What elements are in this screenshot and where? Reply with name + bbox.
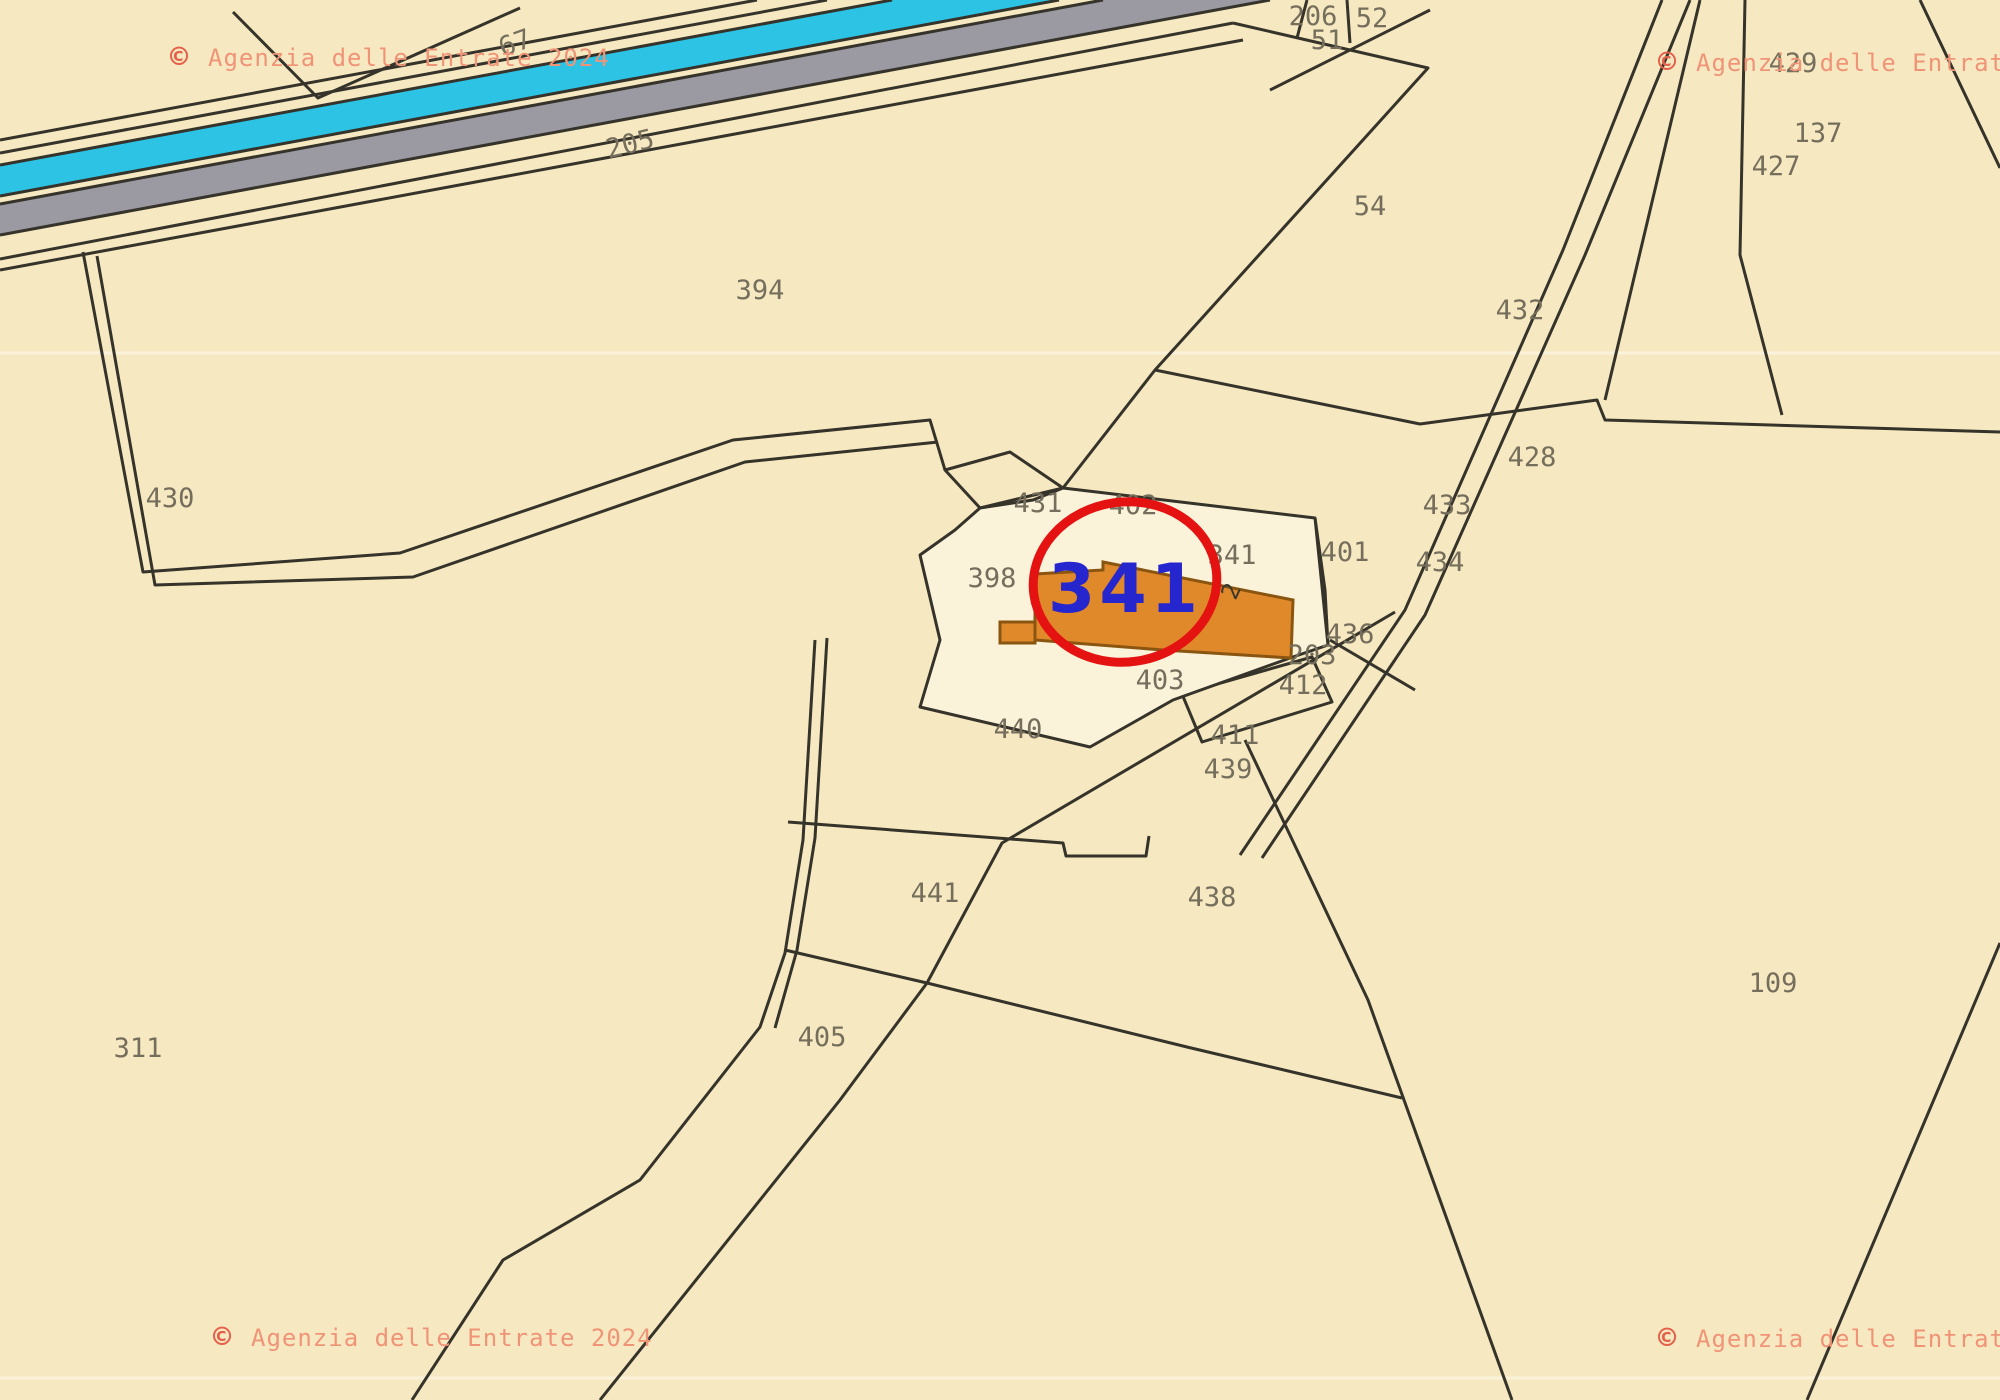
parcel-label-403: 403 — [1136, 665, 1185, 696]
parcel-label-441: 441 — [911, 878, 960, 909]
parcel-label-203: 203 — [1288, 640, 1337, 671]
parcel-label-205: 205 — [603, 124, 658, 166]
parcel-label-137: 137 — [1794, 118, 1843, 149]
cadastral-map-viewport[interactable]: 2 67205206525154394429137427432428433434… — [0, 0, 2000, 1400]
parcel-label-394: 394 — [736, 275, 785, 306]
parcel-label-412: 412 — [1279, 670, 1328, 701]
parcel-label-433: 433 — [1423, 490, 1472, 521]
parcel-label-54: 54 — [1354, 191, 1387, 222]
copyright-symbol-icon: © — [170, 40, 189, 75]
parcel-label-428: 428 — [1508, 442, 1557, 473]
parcel-label-51: 51 — [1311, 25, 1344, 56]
copyright-watermark-text: Agenzia delle Entrate 2024 — [1696, 49, 2000, 77]
copyright-watermark-text: Agenzia delle Entrate 2024 — [1696, 1325, 2000, 1353]
parcel-label-411: 411 — [1211, 720, 1260, 751]
parcel-label-398: 398 — [968, 563, 1017, 594]
parcel-label-311: 311 — [114, 1033, 163, 1064]
copyright-watermark-text: Agenzia delle Entrate 2024 — [251, 1324, 653, 1352]
highlighted-parcel-number: 341 — [1048, 550, 1202, 629]
parcel-label-439: 439 — [1204, 754, 1253, 785]
parcel-label-427: 427 — [1752, 151, 1801, 182]
copyright-symbol-icon: © — [213, 1320, 232, 1355]
parcel-label-438: 438 — [1188, 882, 1237, 913]
building-annex[interactable] — [1000, 622, 1035, 643]
copyright-watermark-text: Agenzia delle Entrate 2024 — [208, 44, 610, 72]
cadastral-map: 2 67205206525154394429137427432428433434… — [0, 0, 2000, 1400]
parcel-label-52: 52 — [1356, 3, 1389, 34]
parcel-label-432: 432 — [1496, 295, 1545, 326]
parcel-label-440: 440 — [994, 714, 1043, 745]
parcel-label-431: 431 — [1014, 488, 1063, 519]
parcel-label-109: 109 — [1749, 968, 1798, 999]
parcel-label-405: 405 — [798, 1022, 847, 1053]
parcel-label-401: 401 — [1321, 537, 1370, 568]
parcel-label-434: 434 — [1416, 547, 1465, 578]
copyright-symbol-icon: © — [1658, 1321, 1677, 1356]
parcel-label-430: 430 — [146, 483, 195, 514]
copyright-symbol-icon: © — [1658, 45, 1677, 80]
